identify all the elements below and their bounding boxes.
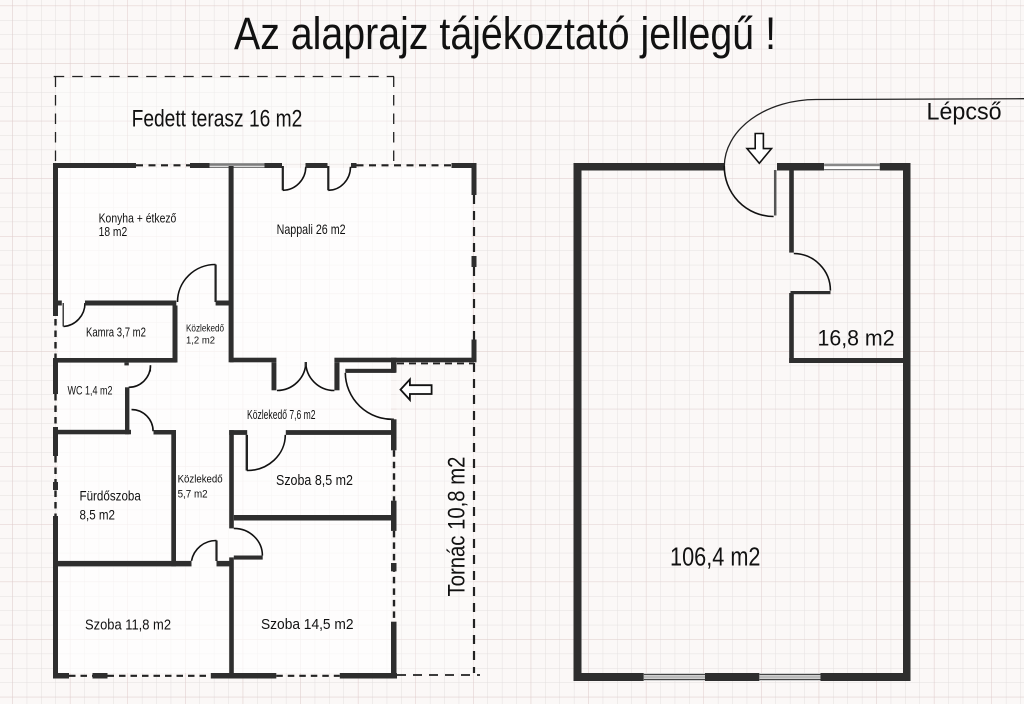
svg-text:Lépcső: Lépcső [927,99,1002,125]
svg-text:Az alaprajz tájékoztató jelleg: Az alaprajz tájékoztató jellegű ! [234,9,776,59]
svg-text:Fürdőszoba: Fürdőszoba [80,488,142,504]
svg-text:1,2 m2: 1,2 m2 [186,335,215,347]
svg-text:Kamra 3,7 m2: Kamra 3,7 m2 [86,326,146,340]
svg-text:16,8 m2: 16,8 m2 [818,325,895,350]
svg-text:Közlekedő 7,6 m2: Közlekedő 7,6 m2 [247,409,316,423]
svg-text:Konyha + étkező: Konyha + étkező [99,211,177,225]
svg-text:Szoba 14,5 m2: Szoba 14,5 m2 [261,616,353,633]
svg-text:Közlekedő: Közlekedő [186,321,224,333]
svg-text:18 m2: 18 m2 [99,225,128,239]
svg-text:WC 1,4 m2: WC 1,4 m2 [68,384,113,398]
svg-text:Nappali 26 m2: Nappali 26 m2 [277,222,346,238]
svg-text:Közlekedő: Közlekedő [178,474,223,486]
svg-text:Szoba 11,8 m2: Szoba 11,8 m2 [85,616,171,633]
svg-text:106,4 m2: 106,4 m2 [670,543,760,572]
svg-text:Szoba 8,5 m2: Szoba 8,5 m2 [276,472,353,488]
svg-text:8,5 m2: 8,5 m2 [80,507,116,523]
svg-text:5,7 m2: 5,7 m2 [178,489,208,501]
svg-text:Tornác 10,8 m2: Tornác 10,8 m2 [443,457,470,597]
svg-text:Fedett terasz 16 m2: Fedett terasz 16 m2 [132,104,303,132]
